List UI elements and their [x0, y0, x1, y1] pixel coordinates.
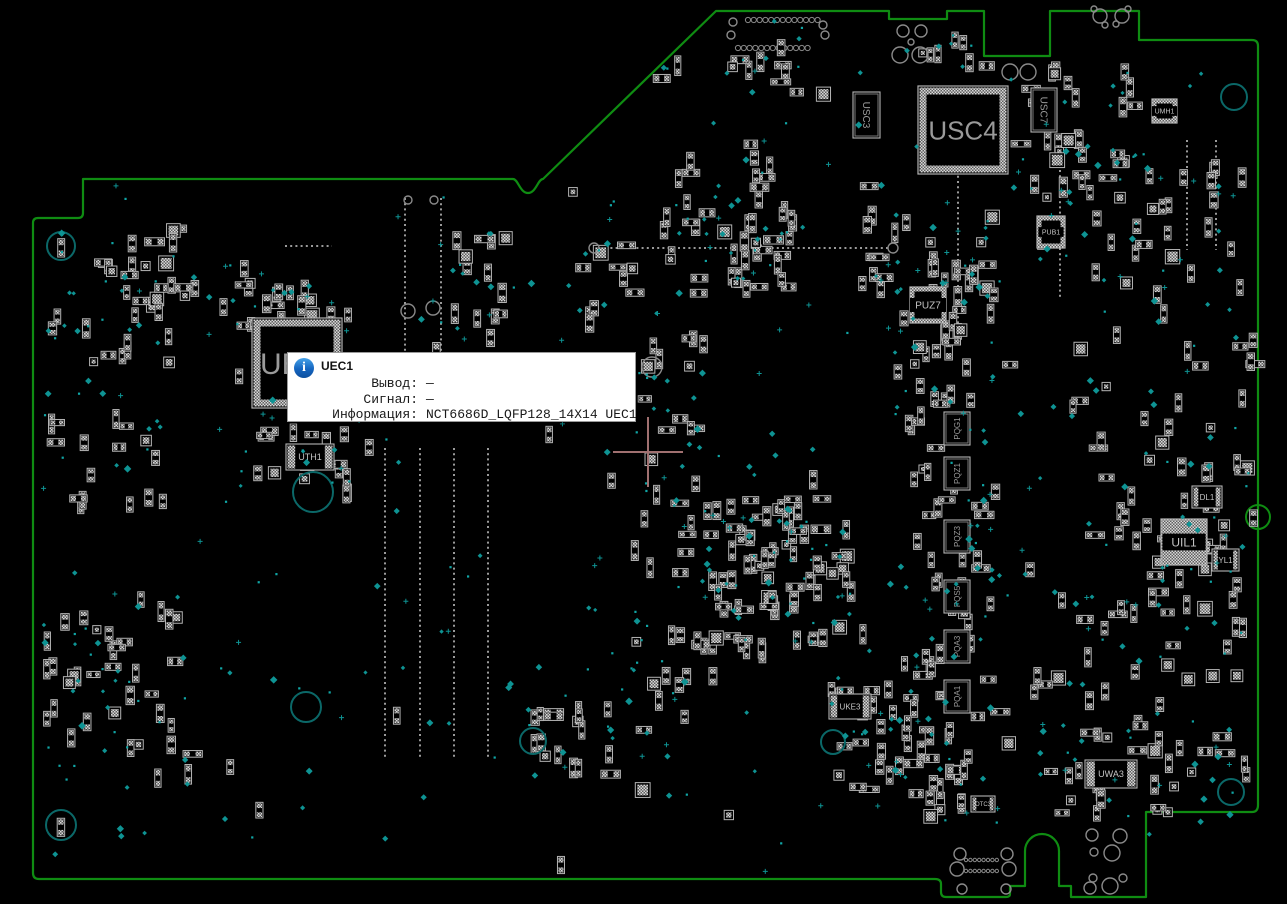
smd-part[interactable]	[1165, 250, 1179, 264]
smd-part[interactable]	[474, 310, 481, 327]
smd-part[interactable]	[1166, 642, 1180, 649]
smd-part[interactable]	[813, 556, 821, 570]
smd-part[interactable]	[987, 597, 994, 611]
smd-part[interactable]	[979, 62, 994, 70]
smd-part[interactable]	[958, 794, 966, 808]
smd-part[interactable]	[487, 329, 495, 346]
smd-part[interactable]	[1093, 211, 1101, 226]
smd-part[interactable]	[235, 282, 252, 288]
smd-part[interactable]	[743, 280, 750, 297]
smd-part[interactable]	[113, 410, 119, 429]
smd-part[interactable]	[1086, 532, 1105, 538]
smd-part[interactable]	[735, 606, 754, 613]
smd-part[interactable]	[894, 365, 902, 379]
smd-part[interactable]	[716, 603, 732, 609]
smd-part[interactable]	[108, 644, 125, 650]
smd-part[interactable]	[771, 79, 791, 85]
smd-part[interactable]	[1121, 277, 1133, 289]
smd-part[interactable]	[751, 283, 768, 290]
smd-part[interactable]	[1051, 671, 1065, 685]
smd-part[interactable]	[237, 322, 250, 329]
smd-part[interactable]	[1077, 615, 1094, 623]
smd-part[interactable]	[1081, 729, 1099, 736]
smd-part[interactable]	[601, 770, 620, 778]
smd-part[interactable]	[531, 735, 537, 754]
smd-part[interactable]	[692, 476, 700, 491]
smd-part[interactable]	[141, 262, 150, 271]
smd-part[interactable]	[1151, 775, 1159, 794]
smd-part[interactable]	[155, 284, 168, 292]
component-YL1[interactable]: YL1	[1212, 549, 1239, 571]
component-PQZ3[interactable]: PQZ3	[944, 520, 970, 553]
smd-part[interactable]	[106, 266, 116, 276]
smd-part[interactable]	[1239, 390, 1246, 407]
smd-part[interactable]	[784, 496, 801, 502]
smd-part[interactable]	[877, 743, 885, 759]
smd-part[interactable]	[145, 691, 158, 697]
smd-part[interactable]	[779, 207, 786, 221]
smd-part[interactable]	[678, 549, 694, 557]
component-PQA1[interactable]: PQA1	[944, 680, 970, 713]
smd-part[interactable]	[834, 770, 844, 780]
smd-part[interactable]	[1059, 593, 1066, 608]
smd-part[interactable]	[236, 369, 243, 384]
smd-part[interactable]	[576, 264, 591, 272]
smd-part[interactable]	[1165, 419, 1173, 435]
smd-part[interactable]	[1126, 78, 1133, 97]
smd-part[interactable]	[1011, 141, 1031, 147]
smd-part[interactable]	[1213, 733, 1231, 741]
smd-part[interactable]	[183, 751, 202, 758]
smd-part[interactable]	[220, 299, 227, 316]
smd-part[interactable]	[763, 507, 771, 526]
smd-part[interactable]	[1031, 175, 1039, 193]
smd-part[interactable]	[44, 711, 50, 726]
smd-part[interactable]	[1097, 432, 1105, 451]
smd-part[interactable]	[1241, 756, 1247, 772]
smd-part[interactable]	[343, 485, 350, 502]
smd-part[interactable]	[345, 308, 352, 322]
smd-part[interactable]	[1233, 578, 1241, 592]
smd-part[interactable]	[1180, 170, 1188, 186]
smd-part[interactable]	[860, 183, 878, 190]
smd-part[interactable]	[694, 632, 701, 650]
smd-part[interactable]	[256, 802, 263, 818]
smd-part[interactable]	[145, 238, 165, 246]
smd-part[interactable]	[87, 468, 95, 482]
smd-part[interactable]	[1181, 493, 1187, 508]
smd-part[interactable]	[1076, 131, 1083, 147]
smd-part[interactable]	[569, 188, 578, 197]
smd-part[interactable]	[903, 759, 923, 767]
smd-part[interactable]	[731, 278, 740, 287]
smd-part[interactable]	[811, 525, 831, 533]
smd-part[interactable]	[393, 707, 400, 724]
smd-part[interactable]	[627, 263, 638, 274]
smd-part[interactable]	[843, 520, 850, 538]
smd-part[interactable]	[790, 528, 806, 535]
smd-part[interactable]	[1219, 520, 1230, 531]
smd-part[interactable]	[51, 700, 57, 717]
smd-part[interactable]	[1087, 185, 1093, 199]
component-OTC3[interactable]: OTC3	[971, 796, 995, 812]
smd-part[interactable]	[774, 255, 781, 274]
smd-part[interactable]	[1070, 400, 1076, 413]
smd-part[interactable]	[1136, 240, 1152, 248]
smd-part[interactable]	[1182, 673, 1195, 686]
smd-part[interactable]	[164, 357, 175, 368]
smd-part[interactable]	[980, 676, 996, 683]
smd-part[interactable]	[641, 511, 648, 527]
smd-part[interactable]	[850, 783, 866, 790]
smd-part[interactable]	[145, 489, 153, 506]
smd-part[interactable]	[87, 671, 100, 677]
smd-part[interactable]	[1145, 455, 1155, 465]
smd-part[interactable]	[946, 723, 953, 738]
smd-part[interactable]	[544, 712, 563, 720]
smd-part[interactable]	[494, 310, 507, 318]
smd-part[interactable]	[645, 453, 658, 466]
smd-part[interactable]	[606, 746, 613, 763]
smd-part[interactable]	[1207, 172, 1215, 188]
smd-part[interactable]	[927, 445, 944, 452]
smd-part[interactable]	[537, 707, 543, 720]
smd-part[interactable]	[1223, 640, 1231, 654]
smd-part[interactable]	[1156, 698, 1164, 712]
smd-part[interactable]	[47, 439, 64, 446]
smd-part[interactable]	[168, 657, 183, 665]
smd-part[interactable]	[1151, 804, 1166, 810]
smd-part[interactable]	[1161, 609, 1174, 616]
smd-part[interactable]	[124, 286, 130, 300]
smd-part[interactable]	[1118, 601, 1125, 615]
smd-part[interactable]	[932, 345, 940, 358]
smd-part[interactable]	[180, 291, 189, 300]
component-UIL1[interactable]: UIL1	[1161, 519, 1207, 565]
smd-part[interactable]	[860, 625, 866, 644]
smd-part[interactable]	[793, 631, 800, 649]
smd-part[interactable]	[1108, 234, 1114, 250]
smd-part[interactable]	[1228, 242, 1235, 256]
smd-part[interactable]	[262, 295, 270, 313]
smd-part[interactable]	[699, 209, 715, 217]
smd-part[interactable]	[900, 311, 908, 326]
smd-part[interactable]	[1233, 343, 1248, 350]
smd-part[interactable]	[635, 783, 650, 798]
component-PQG1[interactable]: PQG1	[944, 412, 970, 445]
smd-part[interactable]	[638, 396, 651, 402]
smd-part[interactable]	[1092, 264, 1099, 281]
smd-part[interactable]	[1250, 510, 1258, 526]
smd-part[interactable]	[540, 751, 550, 761]
smd-part[interactable]	[90, 358, 98, 366]
smd-part[interactable]	[1198, 747, 1212, 755]
smd-part[interactable]	[240, 261, 248, 277]
smd-part[interactable]	[676, 628, 684, 643]
smd-part[interactable]	[814, 584, 822, 600]
smd-part[interactable]	[459, 250, 472, 263]
smd-part[interactable]	[991, 484, 999, 499]
smd-part[interactable]	[1249, 333, 1257, 347]
smd-part[interactable]	[50, 419, 65, 425]
smd-part[interactable]	[1064, 76, 1072, 89]
smd-part[interactable]	[916, 379, 924, 394]
smd-part[interactable]	[484, 264, 491, 281]
smd-part[interactable]	[684, 195, 690, 210]
smd-part[interactable]	[127, 740, 134, 757]
smd-part[interactable]	[498, 283, 506, 302]
smd-part[interactable]	[101, 351, 116, 359]
smd-part[interactable]	[575, 759, 581, 777]
smd-part[interactable]	[794, 503, 801, 520]
smd-part[interactable]	[631, 541, 638, 561]
smd-part[interactable]	[853, 739, 868, 746]
smd-part[interactable]	[757, 52, 764, 71]
smd-part[interactable]	[1143, 519, 1151, 533]
smd-part[interactable]	[499, 232, 512, 245]
smd-part[interactable]	[227, 760, 234, 775]
smd-part[interactable]	[738, 637, 745, 651]
smd-part[interactable]	[675, 56, 681, 76]
smd-part[interactable]	[1131, 665, 1139, 679]
smd-part[interactable]	[636, 726, 651, 733]
smd-part[interactable]	[843, 572, 850, 587]
smd-part[interactable]	[744, 140, 757, 148]
smd-part[interactable]	[1115, 192, 1126, 203]
smd-part[interactable]	[966, 54, 973, 72]
smd-part[interactable]	[1161, 305, 1167, 323]
smd-part[interactable]	[298, 296, 306, 315]
smd-part[interactable]	[1205, 218, 1212, 237]
smd-part[interactable]	[1133, 722, 1148, 730]
component-USC4[interactable]: USC4	[918, 86, 1008, 174]
smd-part[interactable]	[1128, 747, 1147, 754]
smd-part[interactable]	[1193, 362, 1209, 370]
component-PQA3[interactable]: PQA3	[944, 630, 970, 663]
smd-part[interactable]	[885, 681, 892, 698]
smd-part[interactable]	[1074, 342, 1087, 355]
smd-part[interactable]	[959, 554, 966, 567]
smd-part[interactable]	[658, 427, 675, 433]
smd-part[interactable]	[761, 551, 768, 568]
smd-part[interactable]	[750, 151, 758, 165]
smd-part[interactable]	[1128, 102, 1143, 109]
smd-part[interactable]	[1229, 591, 1237, 608]
smd-part[interactable]	[44, 660, 50, 679]
smd-part[interactable]	[877, 720, 885, 734]
smd-part[interactable]	[713, 502, 721, 520]
smd-part[interactable]	[909, 790, 923, 798]
smd-part[interactable]	[938, 497, 955, 503]
smd-part[interactable]	[954, 324, 966, 336]
smd-part[interactable]	[890, 706, 897, 720]
smd-part[interactable]	[687, 422, 694, 435]
smd-part[interactable]	[57, 818, 64, 836]
component-PUZ7[interactable]: PUZ7	[910, 287, 946, 323]
smd-part[interactable]	[809, 632, 817, 645]
smd-part[interactable]	[788, 210, 795, 226]
smd-part[interactable]	[790, 88, 803, 96]
smd-part[interactable]	[859, 276, 866, 290]
smd-part[interactable]	[159, 256, 174, 271]
smd-part[interactable]	[925, 463, 931, 480]
smd-part[interactable]	[1188, 265, 1195, 282]
smd-part[interactable]	[1149, 590, 1157, 607]
smd-part[interactable]	[928, 552, 934, 567]
smd-part[interactable]	[83, 713, 91, 731]
smd-part[interactable]	[120, 423, 134, 429]
smd-part[interactable]	[155, 769, 161, 787]
smd-part[interactable]	[1103, 733, 1112, 742]
smd-part[interactable]	[668, 626, 674, 645]
smd-part[interactable]	[475, 235, 495, 242]
smd-part[interactable]	[673, 569, 689, 577]
smd-part[interactable]	[709, 668, 717, 685]
component-UKE3[interactable]: UKE3	[829, 694, 871, 719]
smd-part[interactable]	[904, 716, 911, 731]
smd-part[interactable]	[1198, 601, 1213, 616]
smd-part[interactable]	[728, 571, 736, 589]
component-UWA3[interactable]: UWA3	[1085, 760, 1137, 788]
smd-part[interactable]	[863, 217, 871, 234]
smd-part[interactable]	[343, 469, 350, 486]
smd-part[interactable]	[254, 466, 262, 481]
smd-part[interactable]	[875, 760, 883, 774]
smd-part[interactable]	[1121, 509, 1129, 525]
smd-part[interactable]	[109, 707, 121, 719]
smd-part[interactable]	[1170, 782, 1179, 791]
smd-part[interactable]	[1232, 617, 1239, 636]
smd-part[interactable]	[159, 494, 166, 508]
smd-part[interactable]	[1049, 68, 1061, 80]
smd-part[interactable]	[1076, 763, 1082, 779]
smd-part[interactable]	[579, 721, 585, 739]
smd-part[interactable]	[268, 467, 280, 479]
smd-part[interactable]	[1159, 199, 1166, 214]
smd-part[interactable]	[1141, 412, 1148, 426]
smd-part[interactable]	[61, 614, 69, 631]
smd-part[interactable]	[585, 314, 593, 332]
smd-part[interactable]	[991, 709, 1010, 715]
smd-part[interactable]	[1176, 570, 1183, 588]
smd-part[interactable]	[819, 629, 827, 646]
smd-part[interactable]	[340, 427, 348, 442]
smd-part[interactable]	[727, 499, 735, 514]
smd-part[interactable]	[1133, 219, 1141, 233]
smd-part[interactable]	[869, 254, 889, 260]
smd-part[interactable]	[1034, 668, 1041, 685]
smd-part[interactable]	[975, 511, 994, 518]
smd-part[interactable]	[972, 502, 989, 510]
smd-part[interactable]	[675, 170, 681, 188]
smd-part[interactable]	[576, 709, 582, 722]
smd-part[interactable]	[80, 435, 88, 451]
smd-part[interactable]	[126, 686, 134, 704]
smd-part[interactable]	[786, 583, 804, 591]
smd-part[interactable]	[813, 496, 831, 502]
smd-part[interactable]	[679, 531, 696, 537]
smd-part[interactable]	[134, 740, 143, 749]
smd-part[interactable]	[1155, 732, 1162, 746]
smd-part[interactable]	[626, 289, 644, 296]
smd-part[interactable]	[155, 303, 162, 320]
smd-part[interactable]	[1059, 177, 1067, 197]
smd-part[interactable]	[967, 393, 975, 407]
smd-part[interactable]	[827, 568, 838, 579]
component-USC3[interactable]: USC3	[853, 92, 880, 138]
smd-part[interactable]	[729, 541, 736, 560]
smd-part[interactable]	[1079, 175, 1085, 190]
smd-part[interactable]	[1162, 659, 1174, 671]
smd-part[interactable]	[48, 322, 56, 335]
smd-part[interactable]	[741, 251, 749, 270]
smd-part[interactable]	[987, 304, 994, 323]
smd-part[interactable]	[740, 232, 748, 251]
smd-part[interactable]	[1176, 740, 1183, 755]
smd-part[interactable]	[926, 791, 934, 805]
smd-part[interactable]	[786, 232, 793, 245]
smd-part[interactable]	[656, 691, 663, 710]
smd-part[interactable]	[1099, 175, 1117, 181]
smd-part[interactable]	[1102, 382, 1110, 390]
smd-part[interactable]	[105, 627, 113, 641]
smd-part[interactable]	[1050, 153, 1065, 168]
smd-part[interactable]	[724, 810, 733, 819]
smd-part[interactable]	[604, 702, 611, 717]
smd-part[interactable]	[753, 169, 760, 183]
component-UMH1[interactable]: UMH1	[1152, 99, 1177, 123]
smd-part[interactable]	[133, 664, 139, 682]
smd-part[interactable]	[1044, 132, 1050, 150]
smd-part[interactable]	[1184, 596, 1190, 614]
smd-part[interactable]	[1247, 353, 1254, 371]
smd-part[interactable]	[886, 766, 893, 784]
smd-part[interactable]	[290, 424, 296, 441]
smd-part[interactable]	[690, 289, 707, 297]
smd-part[interactable]	[954, 287, 962, 307]
smd-part[interactable]	[675, 678, 683, 693]
smd-part[interactable]	[778, 273, 785, 287]
smd-part[interactable]	[169, 233, 176, 252]
smd-part[interactable]	[1031, 685, 1038, 699]
smd-part[interactable]	[709, 631, 723, 645]
smd-part[interactable]	[925, 754, 940, 762]
smd-part[interactable]	[608, 473, 615, 488]
component-USC7[interactable]: USC7	[1031, 88, 1057, 132]
smd-part[interactable]	[1003, 361, 1018, 368]
smd-part[interactable]	[664, 208, 670, 226]
smd-part[interactable]	[632, 637, 641, 646]
smd-part[interactable]	[911, 360, 919, 368]
smd-part[interactable]	[718, 225, 732, 239]
smd-part[interactable]	[1231, 670, 1243, 682]
smd-part[interactable]	[1002, 737, 1015, 750]
smd-part[interactable]	[1164, 226, 1171, 240]
smd-part[interactable]	[1165, 754, 1172, 772]
smd-part[interactable]	[918, 407, 924, 425]
smd-part[interactable]	[782, 64, 790, 79]
smd-part[interactable]	[911, 700, 918, 717]
smd-part[interactable]	[275, 284, 283, 300]
smd-part[interactable]	[673, 415, 688, 423]
smd-part[interactable]	[681, 710, 688, 723]
smd-part[interactable]	[755, 191, 762, 208]
smd-part[interactable]	[687, 152, 694, 170]
smd-part[interactable]	[943, 338, 961, 345]
component-PQZ1[interactable]: PQZ1	[944, 457, 970, 490]
smd-part[interactable]	[903, 215, 910, 231]
smd-part[interactable]	[365, 439, 373, 455]
